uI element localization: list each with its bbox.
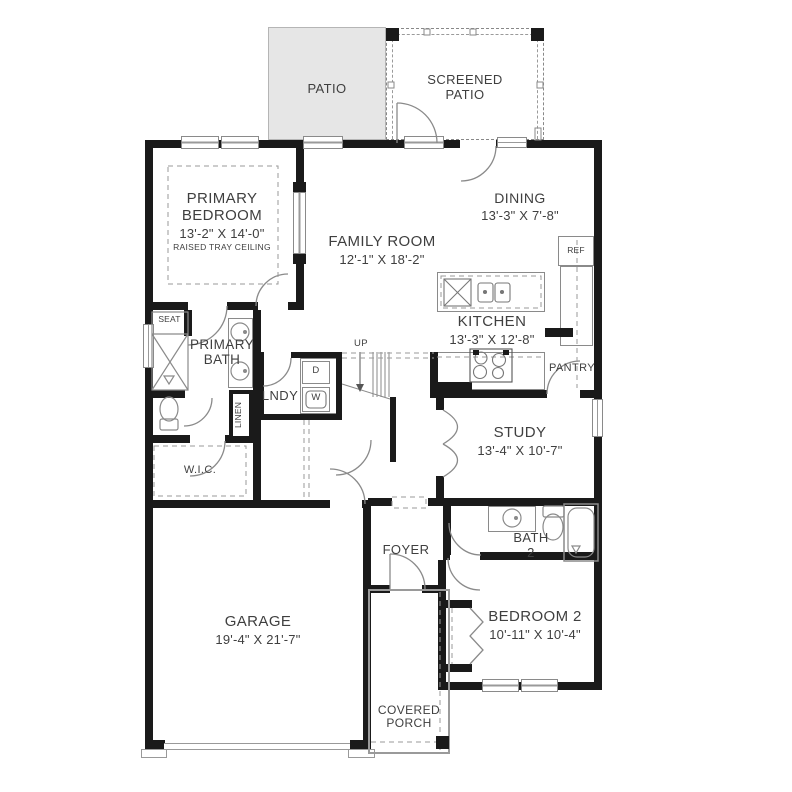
primary-bath-label: PRIMARY BATH xyxy=(174,337,270,367)
floor-plan: PATIO SCREENED PATIO PRIMARY BEDROOM 13'… xyxy=(0,0,792,792)
window xyxy=(181,136,219,149)
window xyxy=(303,136,343,149)
wall xyxy=(145,435,190,443)
seat-label: SEAT xyxy=(151,315,188,325)
family-room-label: FAMILY ROOM 12'-1" X 18'-2" xyxy=(308,234,456,267)
wic-label: W.I.C. xyxy=(169,464,231,476)
bath2-vanity xyxy=(488,506,536,532)
patio-post xyxy=(531,28,544,41)
wall xyxy=(336,352,342,420)
wall xyxy=(258,414,342,420)
wall xyxy=(438,560,446,682)
washer-label: W xyxy=(302,393,330,404)
wall xyxy=(443,552,450,560)
room-dims: 10'-11" X 10'-4" xyxy=(463,628,607,643)
wall xyxy=(443,505,451,555)
laundry-label: LNDY xyxy=(254,389,306,404)
wall xyxy=(288,302,304,310)
shower-drain xyxy=(164,376,174,384)
door-arc xyxy=(184,398,212,426)
garage-door xyxy=(164,743,350,750)
wall xyxy=(438,682,602,690)
room-dims: 13'-2" X 14'-0" xyxy=(152,227,292,242)
window xyxy=(592,399,603,437)
niche-block xyxy=(293,182,306,192)
kitchen-island xyxy=(437,272,545,312)
door-arc xyxy=(390,554,425,589)
door-arc xyxy=(461,146,496,181)
door-arc xyxy=(449,523,481,555)
niche-block xyxy=(293,254,306,264)
patio-post xyxy=(386,28,399,41)
wall xyxy=(446,664,472,672)
garage-label: GARAGE 19'-4" X 21'-7" xyxy=(188,614,328,647)
room-dims: 13'-4" X 10'-7" xyxy=(456,444,584,459)
door-arc xyxy=(330,469,365,504)
ref-label: REF xyxy=(558,246,594,256)
window xyxy=(143,324,154,368)
window xyxy=(521,679,558,692)
bathtub-inner xyxy=(568,508,594,557)
room-note: RAISED TRAY CEILING xyxy=(152,243,292,253)
room-dims: 13'-3" X 7'-8" xyxy=(460,209,580,224)
wall xyxy=(390,397,396,462)
window xyxy=(293,192,306,254)
window xyxy=(221,136,259,149)
door-arc xyxy=(336,440,371,475)
stairs xyxy=(342,352,390,399)
dryer-label: D xyxy=(302,366,330,377)
wall xyxy=(438,382,472,398)
covered-porch-label: COVERED PORCH xyxy=(369,704,449,731)
toilet-tank xyxy=(543,506,564,517)
primary-bedroom-label: PRIMARY BEDROOM 13'-2" X 14'-0" RAISED T… xyxy=(152,191,292,253)
room-name: STUDY xyxy=(456,425,584,442)
wall xyxy=(428,498,444,506)
wall xyxy=(145,390,185,398)
room-name: GARAGE xyxy=(188,614,328,631)
toilet xyxy=(160,397,178,421)
study-label: STUDY 13'-4" X 10'-7" xyxy=(456,425,584,458)
room-name: DINING xyxy=(460,191,580,207)
window xyxy=(497,137,527,148)
patio-label: PATIO xyxy=(277,82,377,97)
room-dims: 12'-1" X 18'-2" xyxy=(308,253,456,268)
room-name: FAMILY ROOM xyxy=(308,234,456,251)
garage-sill xyxy=(348,749,375,758)
window xyxy=(404,136,444,149)
toilet-tank xyxy=(160,419,178,430)
door-arc xyxy=(256,274,288,306)
door-arc xyxy=(448,558,480,590)
wall xyxy=(430,352,438,398)
wall xyxy=(368,498,392,506)
pantry-label: PANTRY xyxy=(545,362,599,374)
wall xyxy=(145,500,330,508)
foyer-label: FOYER xyxy=(374,543,438,558)
garage-sill xyxy=(141,749,167,758)
stairs-arrowhead xyxy=(356,384,364,392)
wall xyxy=(436,398,444,410)
wall xyxy=(227,302,258,310)
screened-patio-label: SCREENED PATIO xyxy=(407,73,523,102)
room-name: PRIMARY BEDROOM xyxy=(152,191,292,225)
wall xyxy=(580,390,594,398)
room-name: BEDROOM 2 xyxy=(463,609,607,626)
kitchen-label: KITCHEN 13'-3" X 12'-8" xyxy=(430,314,554,347)
wall xyxy=(364,585,390,593)
attic-access xyxy=(392,497,426,508)
room-name: KITCHEN xyxy=(430,314,554,331)
porch-post xyxy=(436,736,449,749)
wall xyxy=(446,600,472,608)
wall xyxy=(472,390,547,398)
stairs-up-label: UP xyxy=(348,339,374,350)
wall xyxy=(436,498,602,506)
bedroom2-label: BEDROOM 2 10'-11" X 10'-4" xyxy=(463,609,607,642)
room-dims: 19'-4" X 21'-7" xyxy=(188,633,328,648)
linen-label: LINEN xyxy=(234,396,248,434)
room-dims: 13'-3" X 12'-8" xyxy=(430,333,554,348)
bath2-label: BATH 2 xyxy=(509,531,553,560)
dining-label: DINING 13'-3" X 7'-8" xyxy=(460,191,580,223)
wall xyxy=(291,352,342,358)
window xyxy=(482,679,519,692)
wall xyxy=(145,302,188,310)
